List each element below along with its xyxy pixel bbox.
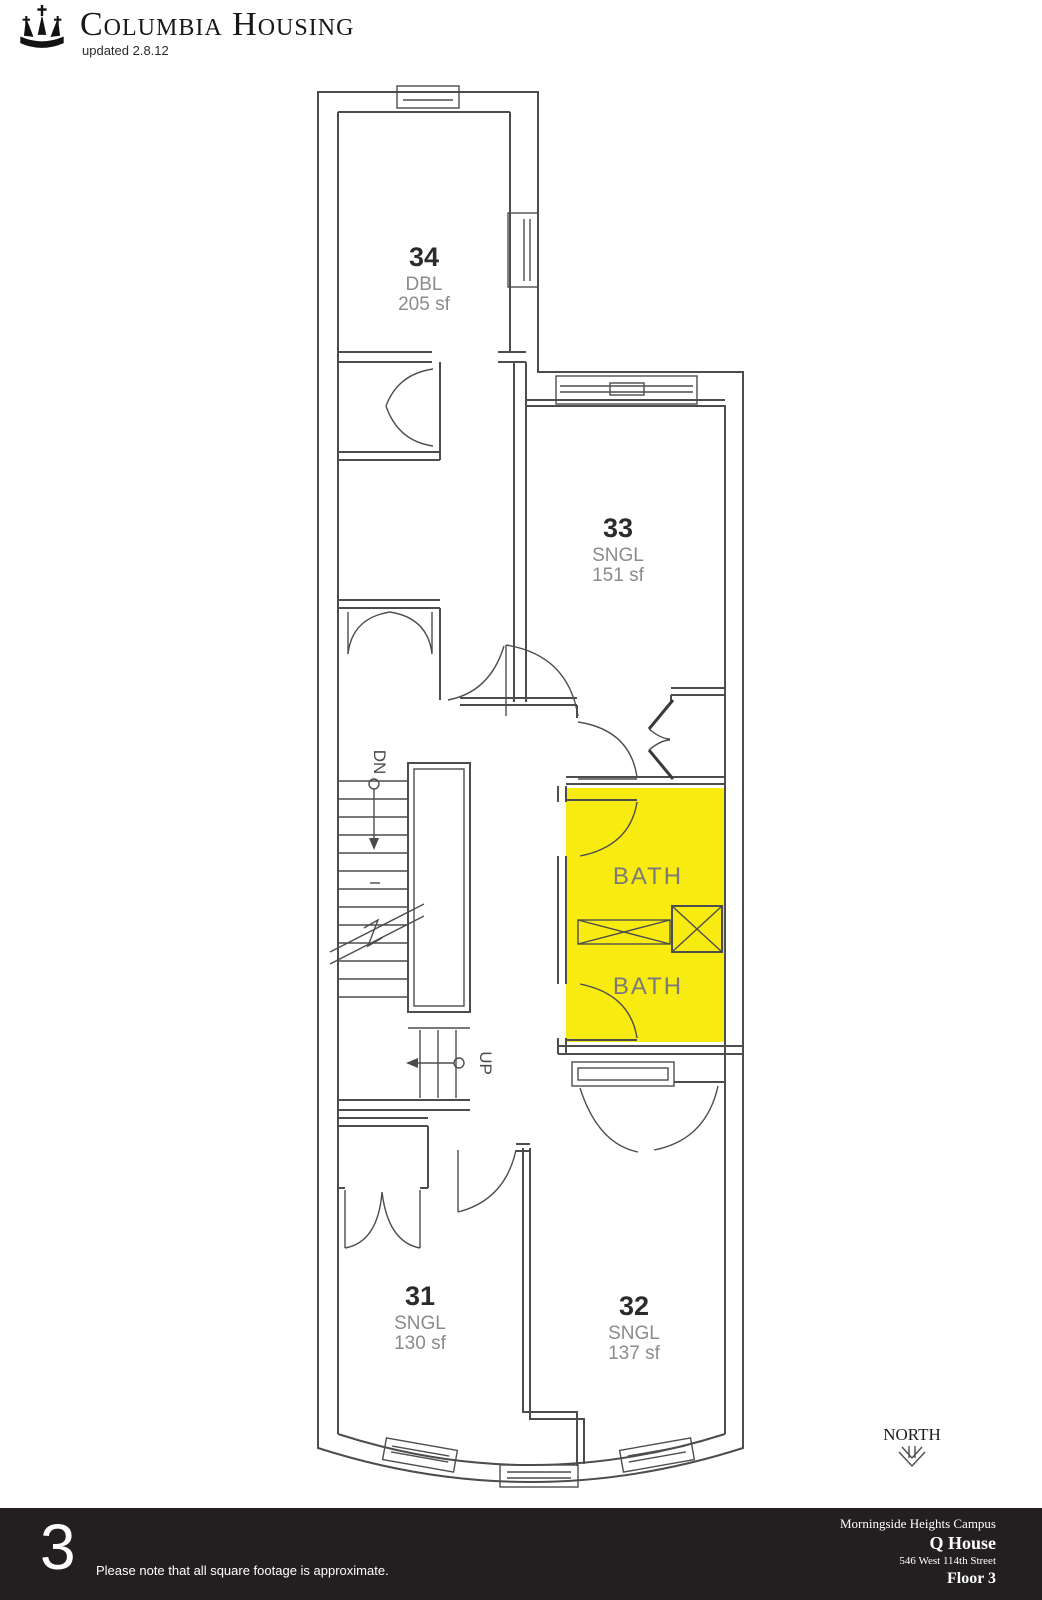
north-compass: NORTH <box>883 1425 941 1466</box>
svg-text:33: 33 <box>603 513 633 543</box>
svg-text:34: 34 <box>409 242 439 272</box>
bath-label-bottom: BATH <box>613 973 683 1000</box>
floor-plan: DN UP <box>0 0 1042 1600</box>
window-34-right <box>508 213 538 287</box>
svg-text:32: 32 <box>619 1291 649 1321</box>
svg-text:SNGL: SNGL <box>394 1313 446 1334</box>
bath-highlight <box>566 788 726 1042</box>
footer-bar: 3 Please note that all square footage is… <box>0 1508 1042 1600</box>
footer-building-info: Morningside Heights Campus Q House 546 W… <box>840 1516 996 1589</box>
footer-building: Q House <box>840 1532 996 1555</box>
svg-text:DBL: DBL <box>406 274 443 295</box>
bath-label-top: BATH <box>613 863 683 890</box>
stairs-up-label: UP <box>476 1051 495 1075</box>
svg-text:31: 31 <box>405 1281 435 1311</box>
svg-text:151 sf: 151 sf <box>592 565 644 586</box>
stair-break-line <box>330 904 424 964</box>
footer-campus: Morningside Heights Campus <box>840 1516 996 1532</box>
footer-floor-number: 3 <box>40 1510 76 1584</box>
bay-window-right <box>620 1438 695 1472</box>
window-34-top <box>397 86 459 108</box>
north-arrow-icon <box>899 1446 925 1466</box>
svg-text:137 sf: 137 sf <box>608 1343 660 1364</box>
room-label-34: 34 DBL 205 sf <box>398 242 450 315</box>
svg-text:130 sf: 130 sf <box>394 1333 446 1354</box>
room-label-31: 31 SNGL 130 sf <box>394 1281 446 1354</box>
svg-text:205 sf: 205 sf <box>398 294 450 315</box>
north-label: NORTH <box>883 1425 941 1444</box>
footer-floor: Floor 3 <box>840 1569 996 1589</box>
room-label-33: 33 SNGL 151 sf <box>592 513 644 586</box>
footer-address: 546 West 114th Street <box>840 1555 996 1569</box>
stair-treads <box>338 781 408 997</box>
footer-note: Please note that all square footage is a… <box>96 1563 389 1578</box>
bay-window-center <box>500 1465 578 1487</box>
svg-text:SNGL: SNGL <box>592 545 644 566</box>
stairs-down-label: DN <box>370 750 389 775</box>
svg-text:SNGL: SNGL <box>608 1323 660 1344</box>
staircase: DN UP <box>330 750 495 1098</box>
room-label-32: 32 SNGL 137 sf <box>608 1291 660 1364</box>
